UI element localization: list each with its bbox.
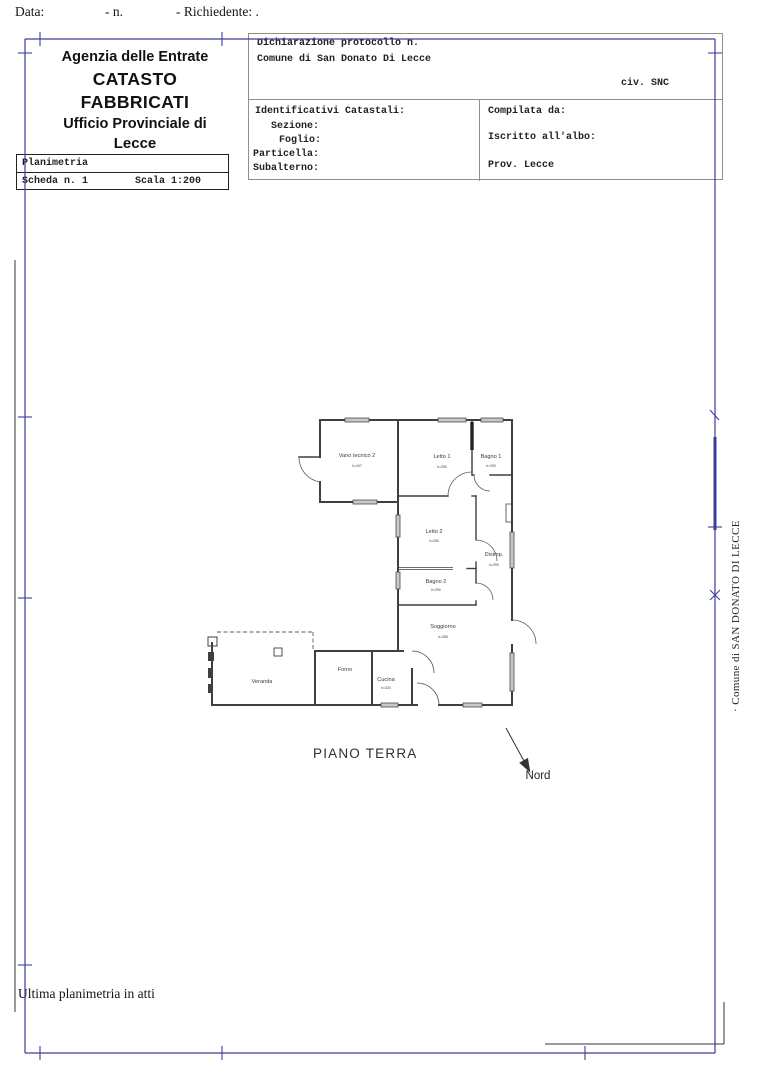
room-height: h=290 — [486, 464, 496, 468]
protocollo-label: Dichiarazione protocollo n. — [257, 38, 419, 49]
veranda-dashed-edge — [217, 632, 313, 651]
identificativi-label: Identificativi Catastali: — [255, 106, 405, 117]
richiedente-label: - Richiedente: . — [176, 4, 259, 20]
office-city: Lecce — [38, 134, 232, 154]
exterior-walls — [212, 420, 512, 705]
thin-partitions — [398, 504, 512, 570]
north-arrow-icon — [480, 700, 550, 785]
catasto-title: CATASTO FABBRICATI — [38, 68, 232, 115]
agency-heading: Agenzia delle Entrate CATASTO FABBRICATI… — [38, 48, 232, 155]
planimetria-box: Planimetria Scheda n. 1 Scala 1:200 — [16, 154, 229, 190]
iscritto-label: Iscritto all'albo: — [488, 132, 596, 143]
room-height: h=247 — [352, 464, 362, 468]
room-label: Bagno 2 — [426, 579, 447, 585]
room-label: Cucina — [377, 677, 395, 683]
comune-label: Comune di San Donato Di Lecce — [257, 54, 431, 65]
room-labels: Vano tecnico 2 h=247 Letto 1 h=290 Bagno… — [252, 453, 504, 690]
cadastral-sheet: Data: - n. - Richiedente: . Agenzia dell… — [0, 0, 763, 1080]
room-height: h=285 — [438, 635, 448, 639]
number-label: - n. — [105, 4, 123, 20]
planimetria-title: Planimetria — [17, 155, 228, 173]
room-label: Bagno 1 — [481, 454, 502, 460]
room-label: Veranda — [252, 679, 274, 685]
room-label: Letto 2 — [425, 529, 442, 535]
door-arcs — [299, 457, 536, 705]
prov-label: Prov. Lecce — [488, 160, 554, 171]
room-height: h=320 — [381, 686, 391, 690]
room-label: Soggiorno — [430, 624, 456, 630]
floor-plan: Vano tecnico 2 h=247 Letto 1 h=290 Bagno… — [195, 405, 540, 725]
room-height: h=290 — [437, 465, 447, 469]
scala-label: Scala 1:200 — [135, 173, 201, 190]
date-label: Data: — [15, 4, 44, 20]
scheda-label: Scheda n. 1 — [22, 176, 88, 187]
declaration-box: Dichiarazione protocollo n. Comune di Sa… — [248, 33, 723, 180]
subalterno-label: Subalterno: — [253, 163, 319, 174]
room-label: Letto 1 — [433, 454, 450, 460]
footer-note: Ultima planimetria in atti — [18, 986, 155, 1002]
identificativi-column: Identificativi Catastali: Sezione: Fogli… — [249, 100, 479, 181]
floor-caption: PIANO TERRA — [313, 746, 417, 761]
interior-walls — [299, 420, 512, 605]
room-height: h=290 — [429, 539, 439, 543]
room-height: h=290 — [489, 563, 499, 567]
compilata-column: Compilata da: Iscritto all'albo: Prov. L… — [479, 100, 722, 181]
room-height: h=290 — [431, 588, 441, 592]
compilata-label: Compilata da: — [488, 106, 566, 117]
office-line: Ufficio Provinciale di — [38, 115, 232, 135]
particella-label: Particella: — [253, 149, 319, 160]
top-margin-line: Data: - n. - Richiedente: . — [0, 0, 763, 24]
room-label: Forno — [338, 667, 353, 673]
side-municipality-text: · Comune di SAN DONATO DI LECCE — [730, 520, 742, 712]
sezione-label: Sezione: — [271, 121, 319, 132]
room-label: Vano tecnico 2 — [339, 453, 376, 459]
room-label: Disimp. — [485, 552, 504, 558]
foglio-label: Foglio: — [279, 135, 321, 146]
civico-label: civ. SNC — [621, 78, 669, 89]
agency-name: Agenzia delle Entrate — [38, 48, 232, 68]
